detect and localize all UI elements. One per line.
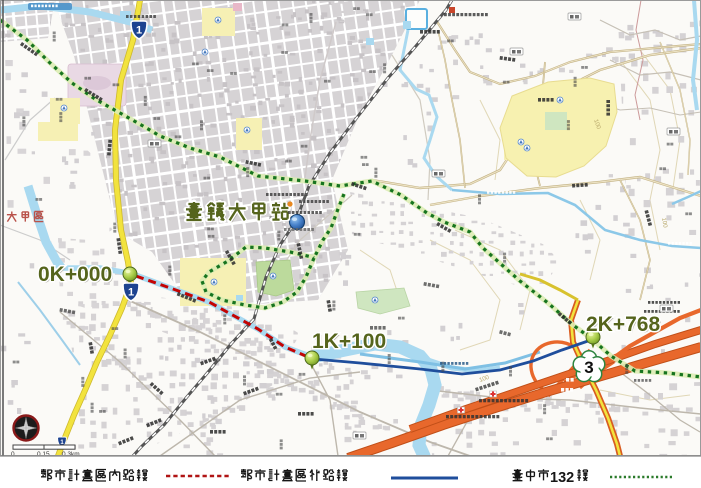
svg-text:3: 3 (584, 358, 593, 377)
svg-text:1K+100: 1K+100 (312, 330, 386, 353)
svg-text:2K+768: 2K+768 (586, 313, 660, 336)
svg-text:1: 1 (136, 25, 142, 37)
svg-text:0K+000: 0K+000 (38, 263, 112, 286)
svg-text:132: 132 (550, 470, 574, 486)
svg-text:1: 1 (128, 287, 134, 299)
